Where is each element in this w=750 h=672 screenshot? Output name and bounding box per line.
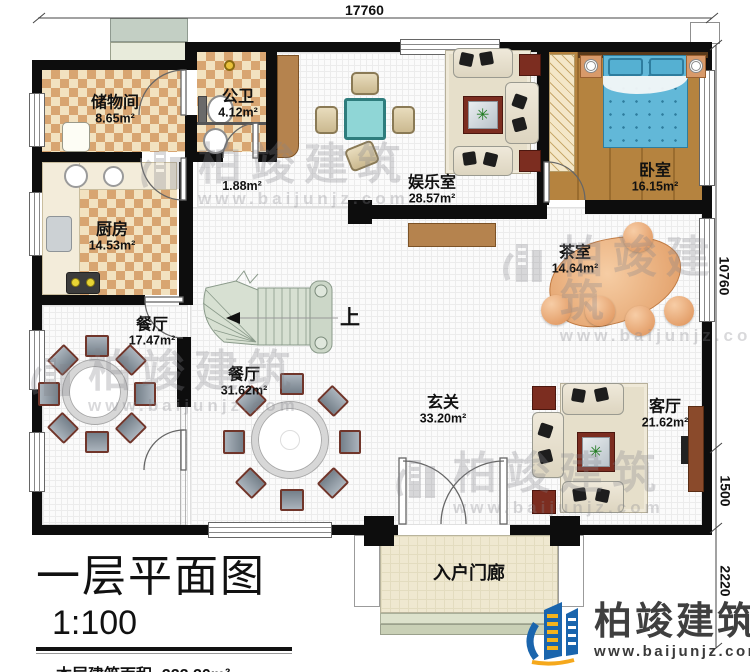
stat-floor-area: 本层建筑面积: 222.20m²	[56, 661, 366, 672]
dining-chair	[280, 489, 304, 511]
plant: ✳	[589, 442, 602, 462]
sofa	[532, 412, 564, 478]
room-label-living: 客厅 21.62m²	[642, 398, 689, 429]
pouf	[625, 306, 655, 336]
sofa	[562, 481, 624, 513]
room-label-porch: 入户门廊	[433, 564, 505, 584]
room-label-entertainment: 娱乐室 28.57m²	[408, 174, 456, 205]
brand-name: 柏竣建筑	[594, 603, 750, 641]
room-label-bedroom: 卧室 16.15m²	[632, 162, 679, 193]
sofa-cushion	[462, 151, 477, 166]
room-label-dining-small: 餐厅 17.47m²	[129, 316, 176, 347]
kitchen-sink	[46, 216, 72, 252]
corner-table	[519, 150, 541, 172]
pouf	[541, 295, 571, 325]
wall	[177, 337, 191, 407]
room-label-bathroom: 公卫 4.12m²	[218, 88, 258, 119]
plan-scale: 1:100	[52, 604, 137, 642]
table-lamp	[584, 59, 598, 73]
sideboard	[408, 223, 496, 247]
dining-chair	[85, 335, 109, 357]
hall-cabinet-tall	[277, 55, 299, 158]
pouf	[623, 222, 653, 252]
wardrobe	[549, 54, 575, 172]
wall	[510, 525, 712, 535]
window	[29, 330, 45, 390]
porch-column-right	[550, 516, 580, 546]
dining-chair	[223, 430, 245, 454]
sofa-cushion	[572, 487, 587, 502]
pillow	[649, 58, 684, 76]
table-lamp	[689, 59, 703, 73]
window	[29, 93, 45, 147]
wall	[185, 42, 197, 70]
dining-chair	[280, 373, 304, 395]
corner-table	[519, 54, 541, 76]
pouf	[664, 296, 694, 326]
ceiling-lamp	[224, 60, 235, 71]
cased-opening	[180, 407, 186, 525]
plant: ✳	[476, 105, 489, 125]
mahjong-table	[344, 98, 386, 140]
floor-plan-canvas: ✳ ✳	[0, 0, 750, 672]
dim-right-mid: 1500	[718, 475, 734, 506]
window	[699, 218, 715, 322]
mahjong-chair	[351, 72, 379, 95]
dining-chair	[85, 431, 109, 453]
storage-cabinet	[62, 122, 90, 152]
wall	[32, 295, 145, 305]
room-label-storage: 储物间 8.65m²	[91, 94, 139, 125]
brand-logo-icon	[522, 596, 586, 666]
dining-chair	[339, 430, 361, 454]
stove-burner	[71, 278, 80, 287]
sofa-cushion	[595, 488, 610, 503]
brand-logo: 柏竣建筑 www.baijunjz.com	[522, 596, 750, 666]
window	[208, 522, 332, 538]
sofa	[505, 82, 539, 144]
porch-column-left	[364, 516, 394, 546]
room-label-kitchen: 厨房 14.53m²	[89, 221, 136, 252]
dining-table-center	[280, 430, 300, 450]
dim-top: 17760	[345, 2, 384, 18]
dining-table-small	[63, 360, 127, 424]
dim-right-main: 10760	[716, 257, 732, 296]
room-label-corridor: 1.88m²	[222, 180, 262, 194]
corner-table	[532, 386, 556, 410]
mahjong-chair	[315, 106, 338, 134]
room-label-tearoom: 茶室 14.64m²	[552, 244, 599, 275]
page-title: 一层平面图	[36, 552, 266, 601]
window	[699, 70, 715, 186]
room-label-foyer: 玄关 33.20m²	[420, 394, 467, 425]
wall	[32, 60, 197, 70]
mahjong-chair	[392, 106, 415, 134]
stairs-up-label: 上	[340, 307, 360, 329]
brand-url: www.baijunjz.com	[594, 643, 750, 660]
wall	[258, 152, 277, 162]
wall	[179, 162, 193, 305]
wall	[266, 42, 277, 158]
sofa-cushion	[571, 388, 586, 403]
corner-window-block	[690, 22, 720, 44]
wall	[32, 152, 142, 162]
sofa-cushion	[459, 52, 474, 67]
dining-chair	[38, 382, 60, 406]
sofa-cushion	[594, 387, 609, 402]
dining-chair	[134, 382, 156, 406]
title-underline	[36, 647, 292, 651]
title-underline-thin	[36, 653, 292, 654]
window	[29, 432, 45, 492]
sofa-cushion	[479, 51, 494, 66]
stove-burner	[86, 278, 95, 287]
bath-divider	[197, 122, 266, 125]
wall	[348, 205, 547, 219]
tv-screen	[681, 436, 688, 464]
corner-table	[532, 490, 556, 514]
planter-box	[110, 18, 188, 42]
title-block: 一层平面图1:100 本层建筑面积: 222.20m² 本栋建筑面积: 548.…	[36, 540, 366, 672]
dim-right-bottom: 2220	[718, 565, 734, 596]
tv-cabinet	[688, 406, 704, 492]
room-label-dining-large: 餐厅 31.62m²	[221, 366, 268, 397]
pouf	[585, 296, 615, 326]
toilet-tank	[198, 96, 207, 124]
wall	[537, 200, 547, 214]
kitchen-bowl-2	[103, 166, 124, 187]
planter-box-sill	[110, 42, 188, 62]
kitchen-bowl-1	[64, 164, 88, 188]
pillow	[608, 58, 643, 76]
wall	[585, 200, 712, 214]
washbasin	[203, 128, 228, 154]
